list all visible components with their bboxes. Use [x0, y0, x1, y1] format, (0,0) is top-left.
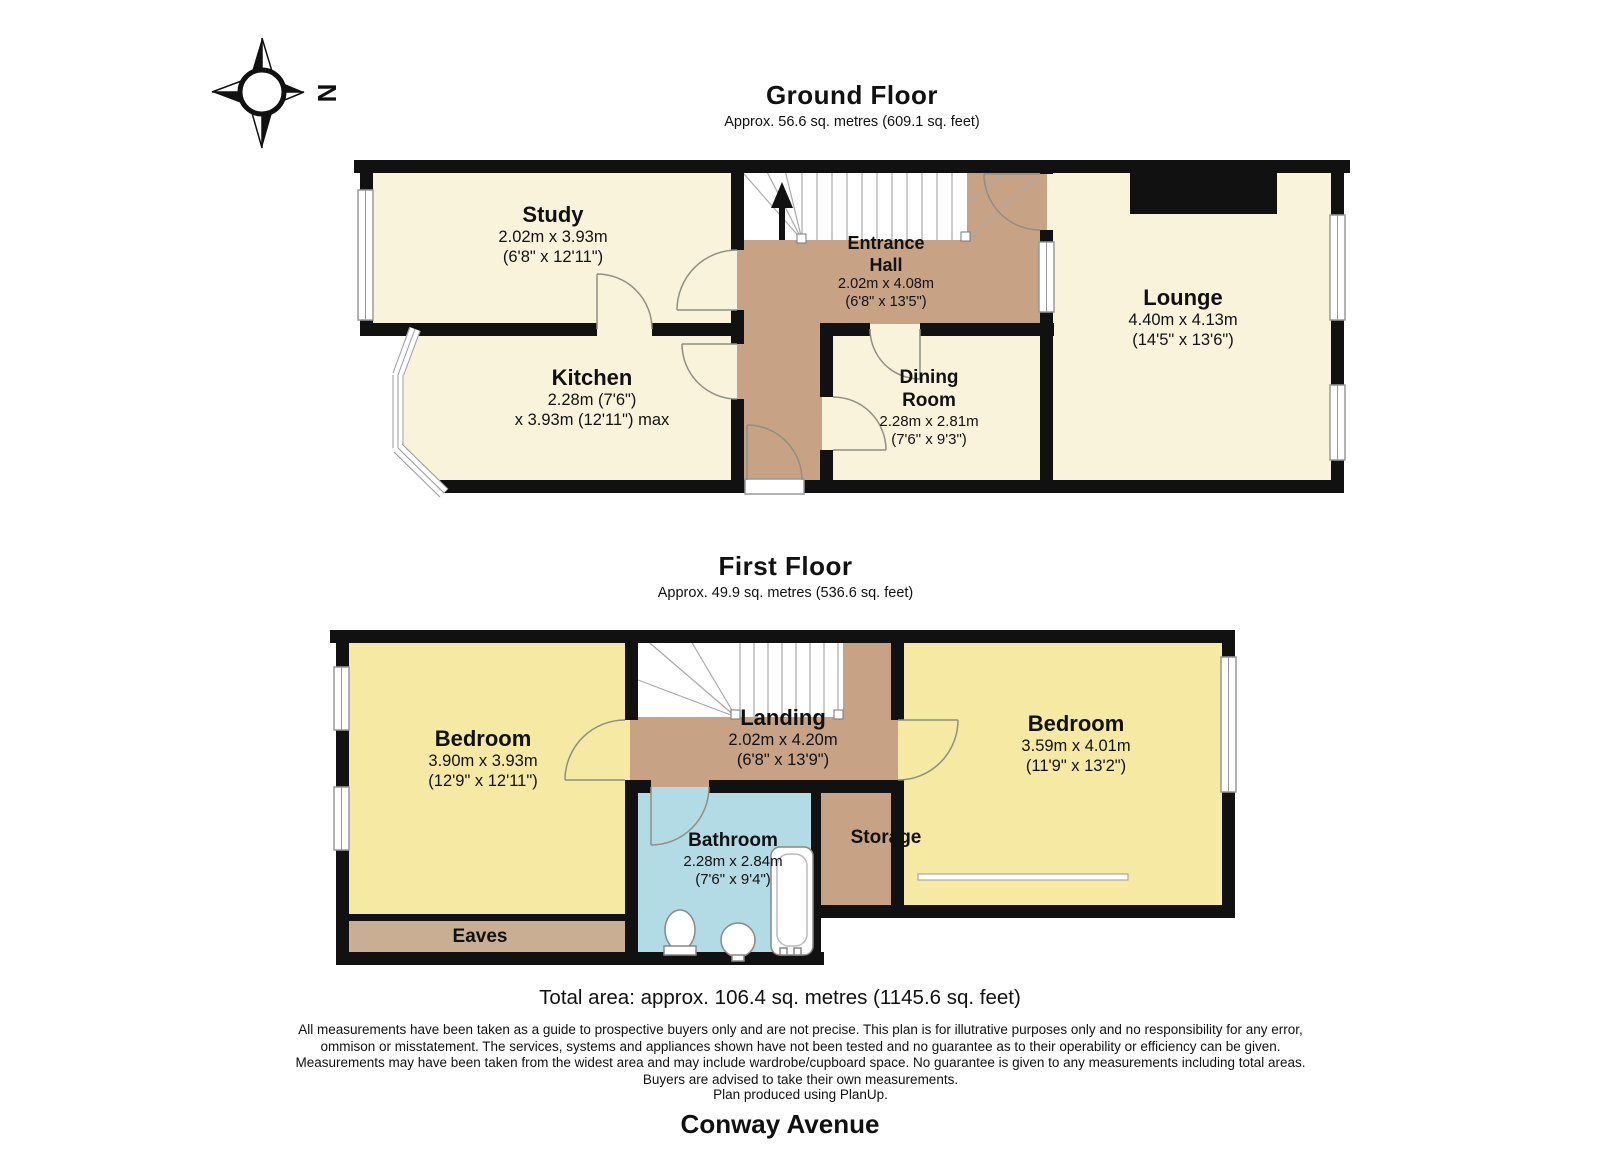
room-label-dining-room: Dining Room 2.28m x 2.81m (7'6" x 9'3") [879, 367, 978, 449]
room-label-entrance-hall: Entrance Hall 2.02m x 4.08m (6'8" x 13'5… [838, 233, 934, 311]
first-floor-header: First Floor Approx. 49.9 sq. metres (536… [328, 551, 1243, 601]
compass-icon: N [200, 30, 360, 160]
wardrobe-line [918, 874, 1128, 880]
floorplan-page: { "compass": { "north_label": "N" }, "gr… [0, 0, 1600, 1163]
toilet [664, 910, 696, 955]
room-label-study: Study 2.02m x 3.93m (6'8" x 12'11") [498, 202, 607, 268]
first-floor-area: Approx. 49.9 sq. metres (536.6 sq. feet) [328, 585, 1243, 601]
produced-by-text: Plan produced using PlanUp. [278, 1087, 1323, 1102]
first-floor-title: First Floor [328, 551, 1243, 582]
hall-window [1039, 242, 1054, 312]
bedroom-left-window-bottom [334, 787, 349, 850]
ground-floor-header: Ground Floor Approx. 56.6 sq. metres (60… [352, 80, 1352, 130]
bedroom-left-window-top [334, 667, 349, 730]
compass-circle [240, 70, 284, 114]
room-label-storage: Storage [851, 827, 922, 850]
room-label-landing: Landing 2.02m x 4.20m (6'8" x 13'9") [728, 705, 837, 771]
room-label-kitchen: Kitchen 2.28m (7'6") x 3.93m (12'11") ma… [515, 365, 670, 431]
compass-north-label: N [312, 84, 342, 103]
property-address: Conway Avenue [0, 1109, 1560, 1140]
ground-floor-title: Ground Floor [352, 80, 1352, 111]
room-label-bathroom: Bathroom 2.28m x 2.84m (7'6" x 9'4") [683, 830, 782, 889]
back-door [745, 479, 804, 494]
room-label-bedroom-right: Bedroom 3.59m x 4.01m (11'9" x 13'2") [1021, 711, 1130, 777]
study-window [358, 190, 373, 320]
disclaimer-text: All measurements have been taken as a gu… [278, 1022, 1323, 1088]
first-floor-plan [328, 622, 1243, 967]
lounge-window-bottom [1330, 385, 1345, 460]
bedroom-right-window [1221, 657, 1236, 792]
ground-floor-area: Approx. 56.6 sq. metres (609.1 sq. feet) [352, 114, 1352, 130]
lounge-window-top [1330, 215, 1345, 320]
room-label-lounge: Lounge 4.40m x 4.13m (14'5" x 13'6") [1128, 285, 1237, 351]
room-label-eaves: Eaves [453, 926, 508, 949]
total-area-text: Total area: approx. 106.4 sq. metres (11… [0, 986, 1560, 1010]
chimney-breast [1130, 166, 1277, 214]
room-label-bedroom-left: Bedroom 3.90m x 3.93m (12'9" x 12'11") [428, 726, 537, 792]
staircase-area [737, 166, 967, 240]
